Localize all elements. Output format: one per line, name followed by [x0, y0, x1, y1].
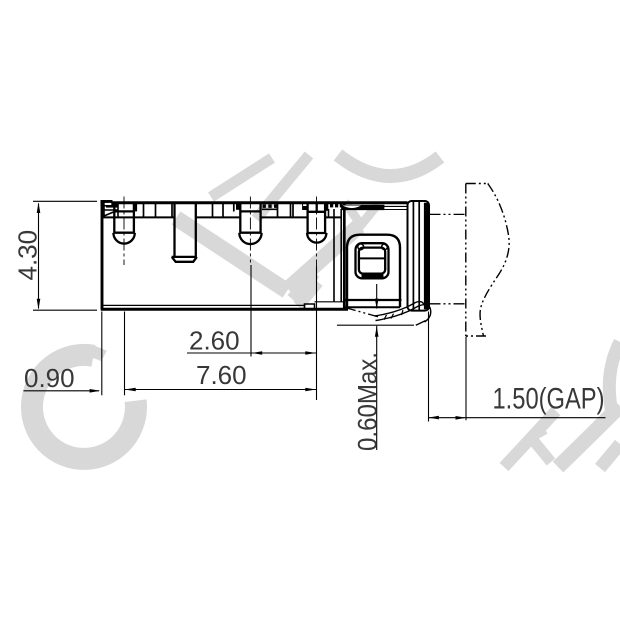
svg-text:7.60: 7.60	[196, 360, 247, 390]
svg-text:1.50(GAP): 1.50(GAP)	[493, 383, 605, 416]
svg-text:0.60Max.: 0.60Max.	[353, 352, 383, 451]
svg-text:4.30: 4.30	[13, 230, 43, 281]
svg-text:2.60: 2.60	[189, 326, 240, 356]
svg-text:0.90: 0.90	[24, 363, 75, 393]
